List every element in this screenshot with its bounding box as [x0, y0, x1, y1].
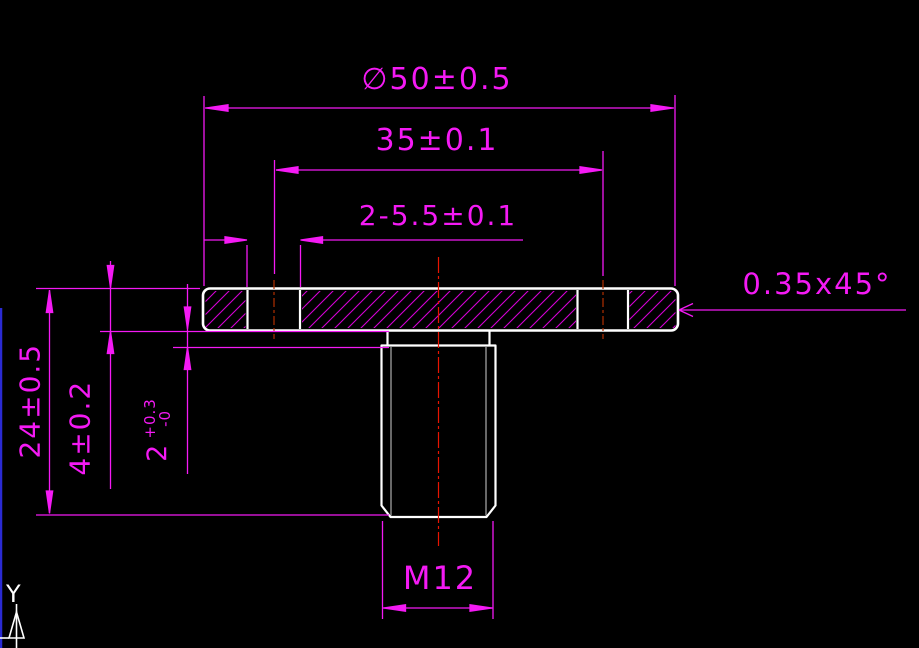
dim-total-height-text[interactable]: 24±0.5 [15, 326, 44, 476]
cad-drawing [0, 0, 919, 648]
chamfer-text[interactable]: 0.35x45° [722, 269, 912, 299]
dim-hole-spacing-text[interactable]: 35±0.1 [369, 125, 505, 157]
ucs-y-axis-icon[interactable] [0, 604, 24, 648]
dim-thread-text[interactable]: M12 [398, 562, 482, 596]
dim-holes[interactable] [204, 237, 523, 287]
dim-flange-thickness-text[interactable]: 4±0.2 [65, 363, 94, 493]
chamfer-leader[interactable] [679, 304, 906, 317]
dim-holes-text[interactable]: 2-5.5±0.1 [348, 201, 528, 230]
dim-boss-height-text[interactable]: 2 +0.3 -0 [141, 388, 175, 472]
boss-height-tolerances: +0.3 -0 [143, 398, 173, 438]
dim-flange-diameter-text[interactable]: ∅50±0.5 [351, 64, 523, 96]
flange-hatch[interactable] [206, 291, 676, 328]
cad-viewport[interactable]: ∅50±0.5 35±0.1 2-5.5±0.1 0.35x45° 24±0.5… [0, 0, 919, 648]
ucs-y-label: Y [6, 580, 21, 608]
boss-height-value: 2 [144, 443, 172, 462]
boss-tol-lower: -0 [158, 398, 173, 438]
